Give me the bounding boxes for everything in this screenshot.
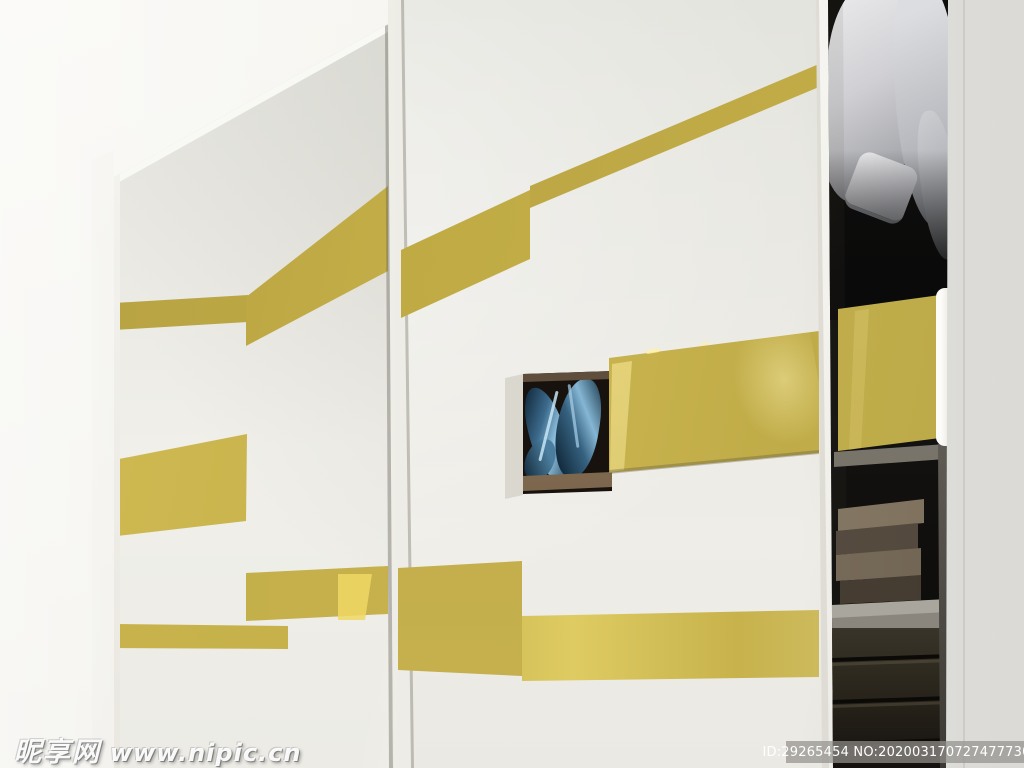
wardrobe-photo: 昵享网 www.nipic.cn ID:29265454 NO:20200317…: [0, 0, 1024, 768]
watermark-site-name: 昵享网: [14, 730, 101, 768]
watermark-site-url: www.nipic.cn: [110, 739, 301, 767]
image-id-bar: ID:29265454 NO:20200317072747773082: [786, 741, 1024, 763]
nipic-watermark: 昵享网 www.nipic.cn: [14, 730, 301, 768]
panel-seam-line: [963, 0, 965, 768]
image-id-text: ID:29265454 NO:20200317072747773082: [762, 745, 1024, 760]
